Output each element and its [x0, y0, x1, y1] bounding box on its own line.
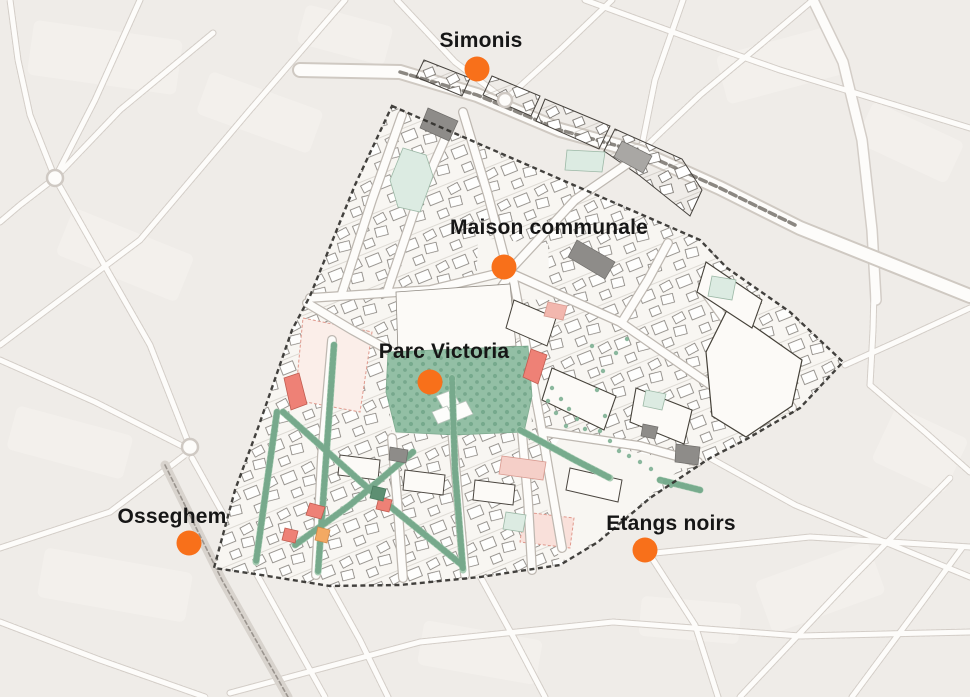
map-marker-dot-etangs-noirs[interactable]	[633, 538, 658, 563]
map-marker-label-osseghem: Osseghem	[118, 505, 227, 529]
map-marker-dot-parc-victoria[interactable]	[418, 370, 443, 395]
map-marker-label-etangs-noirs: Etangs noirs	[606, 512, 736, 536]
marker-layer: SimonisMaison communaleParc VictoriaOsse…	[0, 0, 970, 697]
map-marker-label-simonis: Simonis	[439, 29, 522, 53]
map-marker-dot-simonis[interactable]	[465, 57, 490, 82]
map-marker-label-parc-victoria: Parc Victoria	[379, 340, 510, 364]
map-marker-dot-maison-communale[interactable]	[492, 255, 517, 280]
map-stage: SimonisMaison communaleParc VictoriaOsse…	[0, 0, 970, 697]
map-marker-dot-osseghem[interactable]	[177, 531, 202, 556]
map-marker-label-maison-communale: Maison communale	[450, 216, 648, 240]
